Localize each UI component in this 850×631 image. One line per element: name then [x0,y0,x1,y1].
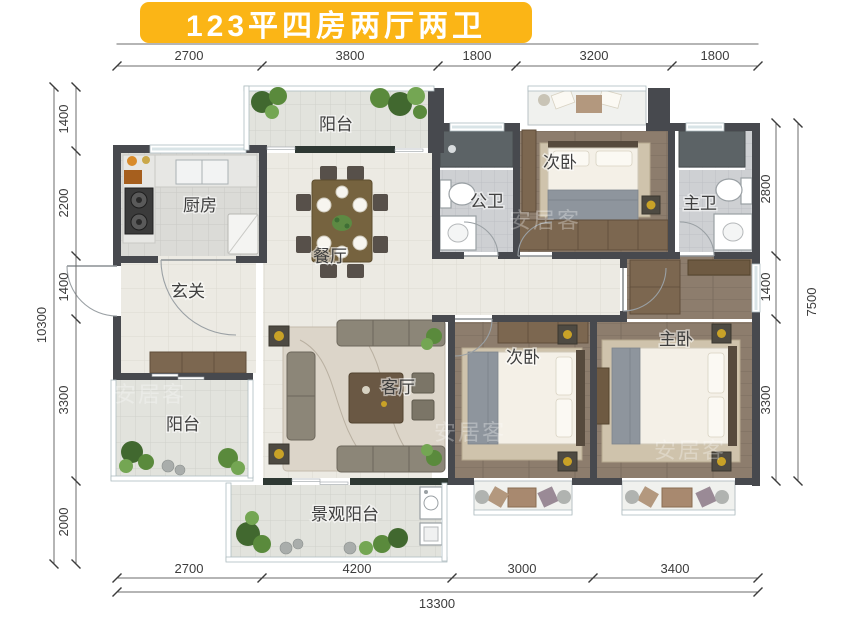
bed-bench [596,368,609,424]
bay-glass-top [528,86,646,91]
dim-bottom-4: 3400 [661,561,690,576]
toilet-master [741,178,752,204]
shoe-cabinet [150,352,246,373]
watermark-text: 安居客 [434,420,506,445]
dim-top-3: 1800 [463,48,492,63]
dim-right-3: 3300 [758,386,773,415]
dim-left-total: 10300 [34,307,49,343]
dim-left-5: 2000 [56,508,71,537]
dim-left-4: 3300 [56,386,71,415]
dim-right-total: 7500 [804,288,819,317]
room-label-balcony-top: 阳台 [319,115,353,134]
watermark-text: 安居客 [114,382,186,407]
landscape-glass-left [226,483,231,561]
master-bath-window [686,123,724,131]
floor-plan-svg: 阳台 厨房 餐厅 公卫 次卧 主卫 玄关 阳台 客厅 次卧 主卧 景观阳台 27… [0,0,850,631]
room-label-bedroom-top: 次卧 [543,153,577,172]
dim-left-2: 2200 [56,189,71,218]
watermark-text: 安居客 [509,208,581,233]
room-label-bedroom-bottom: 次卧 [506,348,540,367]
dim-top-2: 3800 [336,48,365,63]
room-label-foyer: 玄关 [171,282,205,301]
kitchen-stove [125,188,153,234]
dim-top-5: 1800 [701,48,730,63]
dim-right-2: 1400 [758,273,773,302]
dim-bottom-1: 2700 [175,561,204,576]
room-label-master-bath: 主卫 [683,194,717,213]
landscape-glass-right [442,483,447,561]
floorplan-page: 123平四房两厅两卫 [0,0,850,631]
dim-top-1: 2700 [175,48,204,63]
room-label-master-bedroom: 主卧 [659,330,693,349]
bay-rug [508,488,536,507]
watermark-text: 安居客 [654,438,726,463]
balcony-left-glass-bottom [111,476,253,481]
kitchen-window [150,145,246,153]
living-room-set [269,320,445,472]
ottoman [412,400,434,420]
room-label-kitchen: 厨房 [183,196,217,215]
desk-strip [522,130,536,212]
public-bath-window [450,123,504,131]
bay-rug [662,488,692,507]
room-label-balcony-left: 阳台 [166,415,200,434]
dim-left-1: 1400 [56,105,71,134]
room-label-public-bath: 公卫 [470,192,504,211]
washer [420,487,442,519]
balcony-top-glass-left [244,86,249,150]
dim-top-4: 3200 [580,48,609,63]
dim-bottom-total: 13300 [419,596,455,611]
table-centerpiece [332,215,352,231]
entry-door [67,266,117,316]
page-title: 123平四房两厅两卫 [186,1,486,45]
room-label-living: 客厅 [381,378,415,397]
balcony-left-glass-right [248,380,253,478]
laundry-unit [420,487,442,545]
dim-bottom-2: 4200 [343,561,372,576]
bay-glass-2 [622,510,735,515]
dim-right-1: 2800 [758,175,773,204]
ottoman [412,373,434,393]
room-label-landscape-balcony: 景观阳台 [311,505,379,524]
bay-glass-1 [474,510,572,515]
dim-bottom-3: 3000 [508,561,537,576]
landscape-glass-bottom [226,557,447,562]
dresser [688,260,750,275]
dim-left-3: 1400 [56,273,71,302]
room-label-dining: 餐厅 [313,247,347,266]
corridor-floor [432,256,620,315]
shower-master [679,131,745,167]
kitchen-pot [124,170,142,184]
title-banner: 123平四房两厅两卫 [140,2,532,43]
